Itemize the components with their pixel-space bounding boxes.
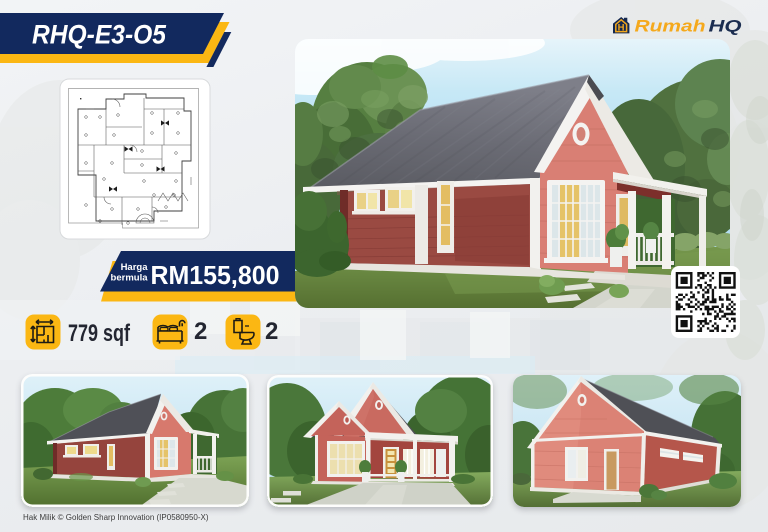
svg-text:Rumah: Rumah — [635, 17, 706, 36]
svg-text:bermula: bermula — [111, 273, 149, 284]
svg-text:779 sqf: 779 sqf — [68, 320, 131, 347]
svg-text:HQ: HQ — [709, 17, 742, 36]
svg-text:RM155,800: RM155,800 — [151, 262, 280, 290]
svg-text:RHQ-E3-O5: RHQ-E3-O5 — [32, 20, 167, 50]
svg-text:Harga: Harga — [121, 262, 149, 273]
svg-text:H: H — [618, 22, 625, 33]
